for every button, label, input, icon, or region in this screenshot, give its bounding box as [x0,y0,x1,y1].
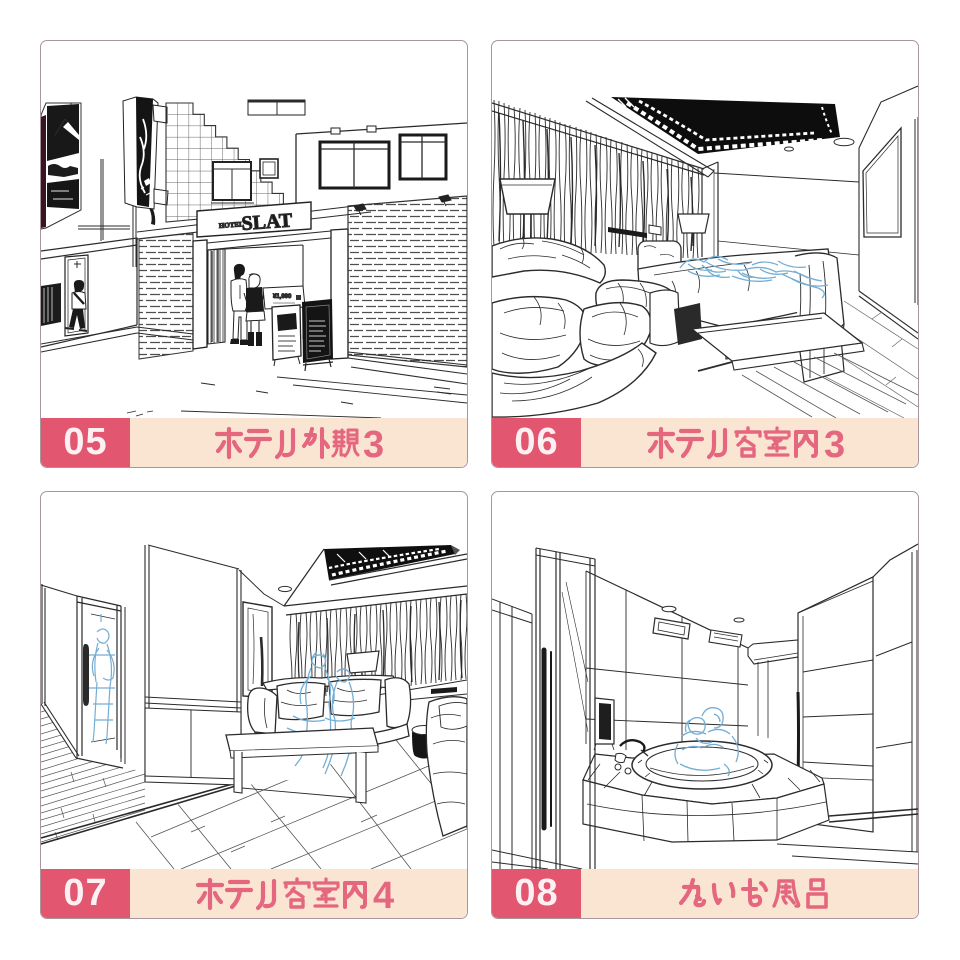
svg-text:3: 3 [363,424,384,466]
svg-text:3: 3 [824,424,845,466]
svg-text:SLAT: SLAT [241,209,294,235]
svg-text:¥1,990: ¥1,990 [273,294,292,300]
svg-text:4: 4 [373,875,394,917]
